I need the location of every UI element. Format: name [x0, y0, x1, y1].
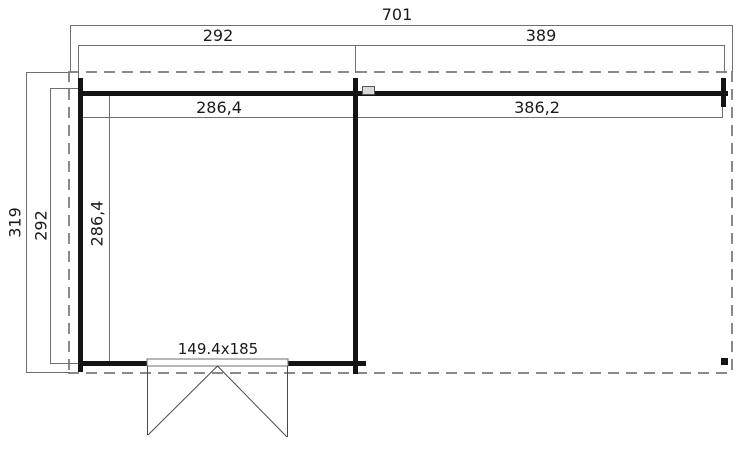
wall-top [78, 91, 728, 96]
dim-label-interior-right-width: 386,2 [497, 99, 577, 116]
dim-label-section-left: 292 [178, 27, 258, 44]
dim-ext-section-depth-top [50, 88, 80, 89]
dim-ext-sections-right [724, 45, 725, 73]
dim-line-total-width [70, 25, 733, 26]
wall-left [78, 78, 83, 372]
door-swing-right [218, 366, 288, 437]
floor-plan-drawing: 701 292 389 286,4 386,2 319 292 286,4 14… [0, 0, 750, 450]
dim-ext-depth-top [26, 72, 70, 73]
wall-end-post-right [721, 78, 726, 107]
dim-ext-depth-bottom [26, 372, 70, 373]
overhang-outline-top [68, 71, 733, 73]
dim-line-interior-depth [109, 96, 110, 361]
overhang-outline-left [68, 71, 70, 374]
dim-ext-sections-mid [355, 45, 356, 73]
dim-label-section-depth: 292 [33, 186, 50, 266]
dim-label-door-size: 149.4x185 [158, 341, 278, 358]
corner-post-marker [721, 358, 728, 365]
dim-line-interior-left [81, 117, 353, 118]
dim-label-total-width: 701 [357, 6, 437, 23]
overhang-outline-right [731, 71, 733, 374]
wall-bottom-right [288, 361, 366, 366]
beam-connector-marker [362, 86, 375, 95]
dim-label-section-right: 389 [501, 27, 581, 44]
door-frame [147, 359, 288, 366]
dim-ext-section-depth-bottom [50, 363, 80, 364]
double-door [145, 358, 293, 442]
dim-line-sections [78, 45, 725, 46]
dim-label-total-depth: 319 [7, 183, 24, 263]
wall-bottom-left [78, 361, 148, 366]
dim-label-interior-left-width: 286,4 [179, 99, 259, 116]
dim-ext-total-right [732, 25, 733, 72]
dim-ext-total-left [70, 25, 71, 72]
wall-middle [353, 78, 358, 374]
dim-line-total-depth [26, 72, 27, 373]
door-swing-left [148, 366, 218, 435]
dim-ext-sections-left [78, 45, 79, 80]
dim-label-interior-depth: 286,4 [89, 184, 106, 264]
dim-line-interior-right [357, 117, 723, 118]
